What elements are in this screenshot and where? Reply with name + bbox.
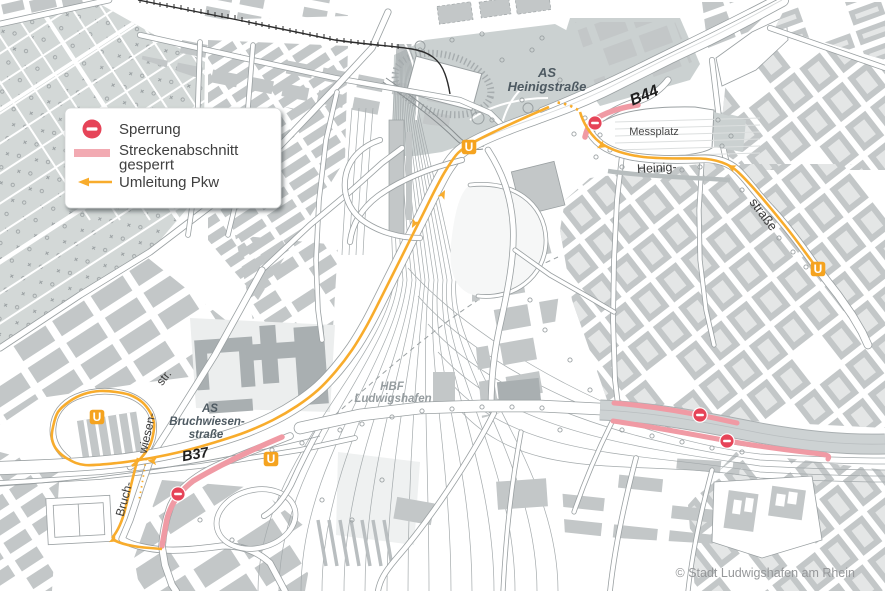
svg-text:Heinig-: Heinig- — [637, 160, 677, 176]
svg-text:U: U — [465, 140, 474, 154]
svg-text:Heinigstraße: Heinigstraße — [508, 79, 587, 94]
svg-text:Messplatz: Messplatz — [629, 126, 679, 138]
svg-text:U: U — [93, 410, 102, 424]
svg-text:AS: AS — [537, 65, 556, 80]
svg-text:AS: AS — [201, 403, 218, 415]
svg-text:Umleitung Pkw: Umleitung Pkw — [119, 174, 219, 191]
svg-text:Bruchwiesen-: Bruchwiesen- — [169, 416, 245, 428]
svg-text:U: U — [267, 452, 276, 466]
svg-text:straße: straße — [189, 429, 224, 441]
svg-text:© Stadt Ludwigshafen am Rhein: © Stadt Ludwigshafen am Rhein — [676, 566, 856, 580]
svg-text:Ludwigshafen: Ludwigshafen — [354, 393, 431, 405]
svg-text:gesperrt: gesperrt — [119, 157, 175, 174]
svg-text:Sperrung: Sperrung — [119, 121, 181, 138]
svg-text:U: U — [814, 262, 823, 276]
svg-text:HBF: HBF — [380, 381, 405, 393]
